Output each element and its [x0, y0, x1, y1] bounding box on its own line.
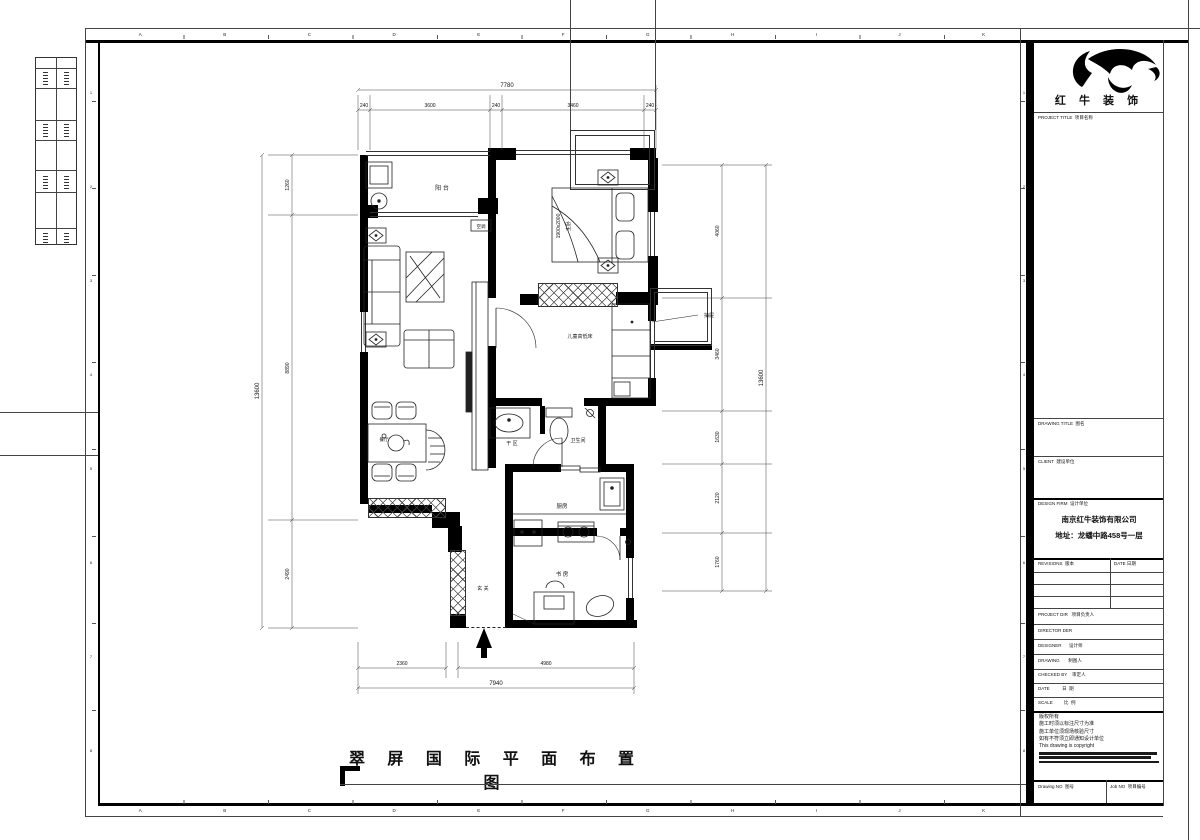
tb-scale: SCALE 比 例: [1038, 700, 1076, 706]
dim-top-seg: 3600: [424, 103, 435, 109]
room-label-dry-area: 干 区: [506, 441, 517, 447]
dim-top-seg: 240: [492, 103, 501, 109]
dim-right-seg: 2120: [715, 492, 721, 503]
title-underline: [340, 784, 1026, 785]
tb-revisions: REVISIONS 版本: [1038, 561, 1074, 567]
bed-size-label: 1900x2000: [556, 213, 562, 238]
tb-job-no: Job NO 项目编号: [1110, 784, 1146, 790]
firm-name: 南京红牛装饰有限公司: [1036, 514, 1162, 525]
company-name: 红 牛 装 饰: [1036, 92, 1162, 108]
dim-left-seg: 2490: [285, 568, 291, 579]
plan-linework: 7780 240 3600 240 3460 240 13600 1260 88…: [0, 0, 1200, 840]
dim-right-seg: 3460: [715, 348, 721, 359]
fine-print-line: [1039, 756, 1151, 759]
tb-drawing: DRAWING 制图人: [1038, 658, 1082, 664]
dim-left-seg: 8890: [285, 362, 291, 373]
list-item: This drawing is copyright: [1039, 743, 1161, 750]
dim-right-seg: 4060: [715, 225, 721, 236]
dim-top-seg: 240: [360, 103, 369, 109]
sheet-title: 翠 屏 国 际 平 面 布 置 图: [330, 745, 662, 793]
room-label-balcony: 阳 台: [435, 184, 449, 192]
dim-left-total: 13600: [255, 382, 261, 399]
list-item: 如有不符须立即通知设计单位: [1039, 736, 1161, 743]
tb-rev-date: DATE 日期: [1114, 561, 1136, 567]
dim-right-seg: 1630: [715, 431, 721, 442]
list-item: 施工单位须现场核验尺寸: [1039, 729, 1161, 736]
tb-project-title: PROJECT TITLE 项目名称: [1038, 115, 1093, 121]
tb-drawing-title: DRAWING TITLE 图名: [1038, 421, 1085, 427]
tb-checked-by: CHECKED BY 审定人: [1038, 672, 1086, 678]
drawing-sheet: ABCDEFGHIJK ABCDEFGHIJK 12345678 1234567…: [0, 0, 1200, 840]
tb-date: DATE 日 期: [1038, 686, 1074, 692]
room-label-study: 书 房: [556, 570, 569, 578]
room-label-master-bedroom: 主卧: [565, 221, 572, 231]
dim-top-seg: 240: [646, 103, 655, 109]
drawer-label: 抽屉: [704, 312, 714, 319]
kids-bed-label: 儿童高低床: [567, 333, 592, 340]
dim-top-seg: 3460: [567, 103, 578, 109]
fine-print-line: [1039, 752, 1157, 755]
room-label-kitchen: 厨房: [556, 502, 568, 510]
tb-project-dir: PROJECT DIR 项目负责人: [1038, 612, 1094, 618]
title-bracket: [340, 766, 345, 786]
list-item: 施工时须以标注尺寸为准: [1039, 721, 1161, 728]
tb-director: DIRECTOR DER: [1038, 628, 1072, 633]
copyright-block: 版权所有施工时须以标注尺寸为准施工单位须现场核验尺寸如有不符须立即通知设计单位T…: [1039, 714, 1161, 765]
room-label-dining: 餐厅: [380, 436, 389, 443]
dim-top-total: 7780: [500, 83, 514, 89]
room-label-entry: 玄 关: [477, 585, 488, 592]
dim-bottom-total: 7940: [489, 681, 503, 687]
dim-left-seg: 1260: [285, 179, 291, 190]
dim-bottom-seg: 2360: [396, 661, 407, 667]
dim-bottom-seg: 4980: [540, 661, 551, 667]
firm-address: 地址：龙蟠中路458号一层: [1036, 530, 1162, 541]
copyright-lines: 版权所有施工时须以标注尺寸为准施工单位须现场核验尺寸如有不符须立即通知设计单位T…: [1039, 714, 1161, 750]
fine-print-line: [1039, 761, 1159, 764]
tb-design-firm: DESIGN FIRM 设计单位: [1038, 501, 1088, 507]
ac-label: 空调: [477, 223, 486, 230]
tb-drawing-no: Drawing NO 图号: [1038, 784, 1074, 790]
dim-right-total: 13600: [759, 369, 765, 386]
tb-designer: DESIGNER 设计师: [1038, 643, 1083, 649]
dim-right-seg: 1760: [715, 556, 721, 567]
tb-client: CLIENT 建设单位: [1038, 459, 1074, 465]
room-label-bathroom: 卫生间: [570, 437, 585, 444]
